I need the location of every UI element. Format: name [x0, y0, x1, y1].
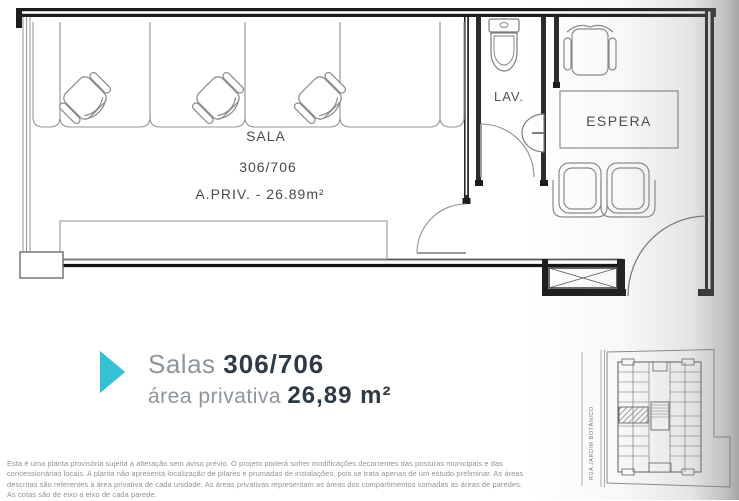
accent-arrow-icon	[100, 351, 126, 394]
sala-door	[417, 204, 466, 253]
espera-armchair	[564, 25, 616, 75]
title-number: 306/706	[223, 349, 324, 379]
shaft-box	[549, 268, 617, 288]
espera-chair	[553, 163, 607, 217]
entrance-door	[628, 216, 706, 296]
floor-plan: SALA 306/706 A.PRIV. - 26.89m² LAV.	[0, 0, 739, 336]
sala-area: A.PRIV. - 26.89m²	[195, 186, 324, 202]
disclaimer-line: As cotas são de eixo a eixo de cada pare…	[7, 490, 556, 500]
title-block: Salas 306/706 área privativa 26,89 m²	[100, 349, 391, 414]
sala-label: SALA	[246, 128, 286, 144]
column-box	[20, 252, 63, 278]
entry-chevron-icon	[696, 230, 703, 245]
espera-label: ESPERA	[586, 113, 652, 129]
title-area-label: área privativa	[148, 385, 281, 408]
espera-chair	[601, 163, 655, 217]
lav-label: LAV.	[494, 89, 524, 104]
building-footprint	[618, 359, 701, 475]
disclaimer-line: descritas são referentes à área privativ…	[7, 480, 556, 490]
disclaimer-line: Esta é uma planta provisória sujeita a a…	[7, 459, 556, 469]
sala-labels: SALA 306/706 A.PRIV. - 26.89m²	[195, 128, 324, 202]
title-area-value: 26,89 m²	[287, 382, 391, 409]
street-label: RUA JARDIM BOTÂNICO	[588, 406, 595, 480]
window-wall	[23, 17, 30, 252]
sala-number: 306/706	[239, 159, 297, 175]
title-prefix: Salas	[148, 349, 216, 379]
disclaimer-text: Esta é uma planta provisória sujeita a a…	[7, 459, 556, 501]
unit-highlight	[619, 407, 648, 423]
title-line-1: Salas 306/706	[148, 349, 391, 379]
disclaimer-line: concessionárias locais. A planta não apr…	[7, 469, 556, 479]
office-chairs	[55, 68, 352, 130]
key-map: RUA JARDIM BOTÂNICO	[575, 340, 739, 495]
title-line-2: área privativa 26,89 m²	[148, 379, 391, 414]
sala-counter	[60, 221, 387, 259]
